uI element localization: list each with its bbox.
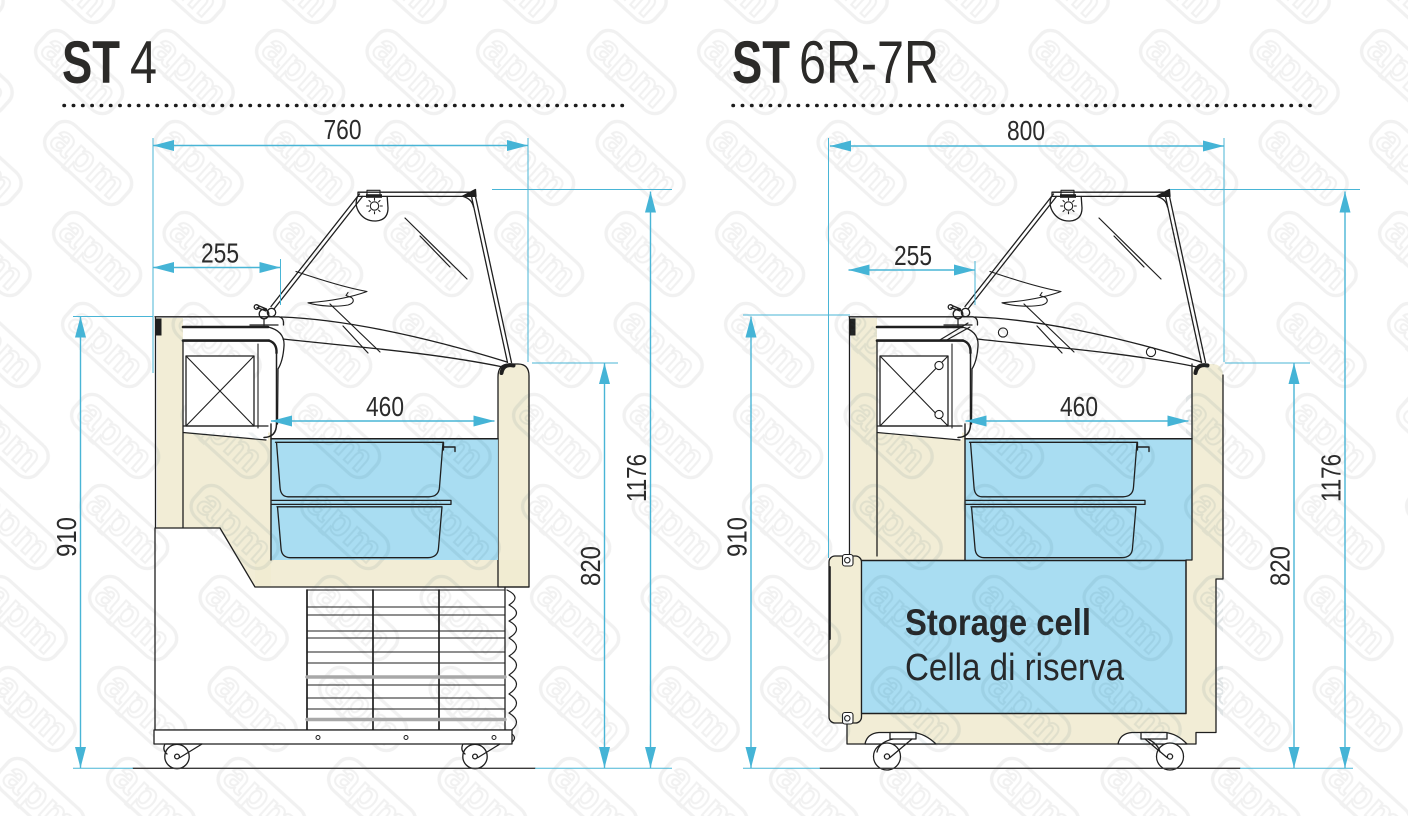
- svg-text:820: 820: [575, 546, 606, 586]
- svg-text:910: 910: [722, 517, 753, 557]
- svg-text:4: 4: [130, 29, 157, 96]
- svg-text:910: 910: [51, 517, 82, 557]
- svg-text:460: 460: [366, 391, 404, 422]
- svg-text:255: 255: [201, 238, 239, 269]
- svg-text:6R-7R: 6R-7R: [799, 29, 939, 96]
- svg-text:ST: ST: [732, 29, 790, 96]
- svg-text:760: 760: [324, 114, 362, 145]
- svg-text:800: 800: [1007, 115, 1045, 146]
- svg-text:1176: 1176: [1316, 454, 1347, 502]
- svg-text:820: 820: [1265, 546, 1296, 586]
- svg-text:1176: 1176: [621, 454, 652, 502]
- svg-text:ST: ST: [62, 29, 120, 96]
- svg-text:255: 255: [894, 240, 932, 271]
- svg-text:460: 460: [1060, 391, 1098, 422]
